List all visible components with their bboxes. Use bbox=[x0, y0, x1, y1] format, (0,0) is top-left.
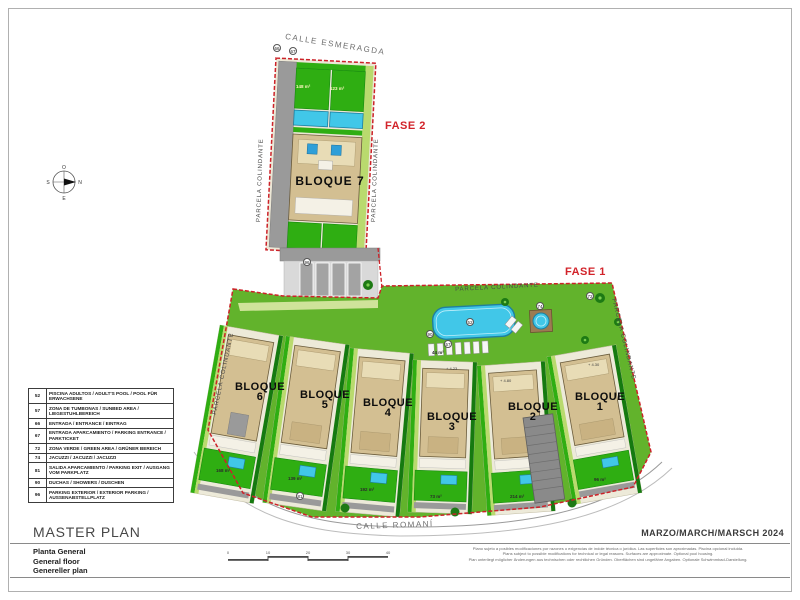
legend-row: 57ZONA DE TUMBONAS / SUNBED AREA / LIEGE… bbox=[29, 404, 174, 419]
area-label-bloque1: 96 m² bbox=[594, 477, 606, 482]
bloque2-num: 2 bbox=[530, 411, 537, 423]
tree-center bbox=[598, 296, 601, 299]
bloque5-num: 5 bbox=[322, 399, 329, 411]
bloque5-label: BLOQUE5 bbox=[297, 390, 353, 410]
scale-segment bbox=[268, 556, 308, 558]
sunbed bbox=[464, 342, 471, 354]
legend-row: 81SALIDA APARCAMIENTO / PARKING EXIT / A… bbox=[29, 463, 174, 478]
subtitle-es: Planta General bbox=[33, 547, 88, 557]
marker-parking-entrance: 67 bbox=[289, 47, 297, 55]
legend-num: 74 bbox=[29, 453, 47, 463]
legend-row: 96PARKING EXTERIOR / EXTERIOR PARKING / … bbox=[29, 488, 174, 503]
area-label-bloque2: 214 m² bbox=[510, 494, 524, 499]
fase2-pool-right bbox=[329, 112, 363, 129]
scale-segment bbox=[308, 559, 348, 561]
palm-tree-icon bbox=[341, 504, 350, 513]
compass-letter-right: N bbox=[78, 180, 82, 186]
area-label-pool-terrace: 44 m² bbox=[432, 350, 444, 355]
parking-stall bbox=[332, 263, 345, 296]
parking-stall bbox=[316, 263, 329, 296]
subtitle-en: General floor bbox=[33, 557, 88, 567]
subtitle-de: Genereller plan bbox=[33, 566, 88, 576]
sheet-title: MASTER PLAN bbox=[33, 524, 141, 540]
scale-step bbox=[268, 556, 269, 561]
compass-letter-top: O bbox=[62, 165, 66, 171]
garden bbox=[343, 466, 398, 502]
bloque2-label: BLOQUE2 bbox=[505, 402, 561, 422]
legend-text: DUCHAS / SHOWERS / DUSCHEN bbox=[47, 478, 174, 488]
marker-showers: 90 bbox=[426, 330, 434, 338]
bloque7-plunge-pool-right bbox=[331, 145, 342, 156]
legend-row: 66ENTRADA / ENTRANCE / EINTRAG bbox=[29, 419, 174, 429]
legend-text: ZONA VERDE / GREEN AREA / GRÜNER BEREICH bbox=[47, 444, 174, 454]
plunge-pool bbox=[441, 475, 457, 485]
tree-center bbox=[504, 301, 507, 304]
legend-num: 72 bbox=[29, 444, 47, 454]
legend-num: 81 bbox=[29, 463, 47, 478]
area-label-bloque5: 139 m² bbox=[288, 476, 302, 481]
marker-pool: 52 bbox=[466, 318, 474, 326]
sunbed bbox=[455, 342, 462, 354]
bloque3-parcel bbox=[408, 360, 477, 514]
parking-stall bbox=[300, 263, 313, 296]
legend-text: JACUZZI / JACUZZI / JACUZZI bbox=[47, 453, 174, 463]
legend-row: 67ENTRADA APARCAMIENTO / PARKING ENTRANC… bbox=[29, 428, 174, 443]
marker-sunbeds: 57 bbox=[444, 340, 452, 348]
corridor-parking-area bbox=[284, 261, 378, 299]
sheet-disclaimer: Plano sujeto a posibles modificaciones p… bbox=[430, 546, 786, 562]
legend-num: 66 bbox=[29, 419, 47, 429]
tree-icon bbox=[366, 283, 369, 286]
level-label-2: + 4.80 bbox=[500, 378, 511, 383]
bloque3-num: 3 bbox=[449, 421, 456, 433]
sheet-date: MARZO/MARCH/MARSCH 2024 bbox=[641, 528, 784, 538]
level-label-1: + 4.23 bbox=[446, 366, 457, 371]
bloque4-num: 4 bbox=[385, 407, 392, 419]
area-label-fase2-left: 148 m² bbox=[296, 84, 310, 89]
building-lower-detail bbox=[290, 422, 322, 444]
fase2-label: FASE 2 bbox=[385, 120, 426, 132]
bloque4-label: BLOQUE4 bbox=[360, 398, 416, 418]
scale-tick-30: 30 bbox=[346, 550, 351, 555]
building-roof-detail bbox=[426, 372, 465, 388]
legend-num: 52 bbox=[29, 389, 47, 404]
bloque1-num: 1 bbox=[597, 401, 604, 413]
marker-jacuzzi: 74 bbox=[536, 302, 544, 310]
bloque7-stair-core bbox=[318, 160, 332, 170]
marker-exterior-parking: 96 bbox=[303, 258, 311, 266]
compass-letter-bottom: E bbox=[62, 196, 66, 202]
drawing-sheet: O N E S CALLE ESMERAGDA CALLE ROMANÍ FAS… bbox=[0, 0, 800, 600]
building-lower-detail bbox=[428, 437, 459, 454]
legend-row: 52PISCINA ADULTOS / ADULT'S POOL / POOL … bbox=[29, 389, 174, 404]
bloque7-label: BLOQUE 7 bbox=[292, 176, 368, 186]
area-label-bloque3: 73 m² bbox=[430, 494, 442, 499]
level-label-3: + 4.30 bbox=[588, 362, 599, 367]
compass-icon: O N E S bbox=[44, 162, 84, 202]
bloque3-label: BLOQUE3 bbox=[424, 412, 480, 432]
legend-num: 67 bbox=[29, 428, 47, 443]
marker-parking-exit: 81 bbox=[296, 492, 304, 500]
bloque6-label: BLOQUE6 bbox=[232, 382, 288, 402]
titleblock-divider-bottom bbox=[10, 577, 790, 578]
marker-green-area: 72 bbox=[586, 292, 594, 300]
legend-num: 96 bbox=[29, 488, 47, 503]
building-roof-detail bbox=[362, 361, 401, 380]
jacuzzi bbox=[529, 309, 552, 332]
tree-center bbox=[584, 339, 587, 342]
disclaimer-de: Plan unterliegt möglicher Änderungen aus… bbox=[430, 557, 786, 562]
legend-row: 72ZONA VERDE / GREEN AREA / GRÜNER BEREI… bbox=[29, 444, 174, 454]
area-label-fase2-right: 123 m² bbox=[330, 86, 344, 91]
sunbed bbox=[482, 341, 489, 353]
sheet-subtitles: Planta General General floor Genereller … bbox=[33, 547, 88, 576]
legend-num: 90 bbox=[29, 478, 47, 488]
legend-row: 90DUCHAS / SHOWERS / DUSCHEN bbox=[29, 478, 174, 488]
fase2-pool-left bbox=[294, 110, 329, 127]
scale-step bbox=[348, 556, 349, 561]
corridor-driveway bbox=[280, 248, 380, 261]
fase1-label: FASE 1 bbox=[565, 266, 606, 278]
area-label-bloque6: 168 m² bbox=[216, 468, 230, 473]
jacuzzi-water bbox=[533, 313, 549, 329]
building-lower-detail bbox=[359, 431, 390, 452]
legend-text: ZONA DE TUMBONAS / SUNBED AREA / LIEGEST… bbox=[47, 404, 174, 419]
terrace bbox=[419, 458, 465, 469]
bloque1-label: BLOQUE1 bbox=[572, 392, 628, 412]
fase2-garden-bottom-right bbox=[322, 224, 357, 252]
palm-tree-icon bbox=[451, 508, 460, 517]
parking-stall bbox=[348, 263, 361, 296]
site-plan-drawing bbox=[0, 0, 800, 600]
scale-segment bbox=[228, 559, 268, 561]
compass-letter-left: S bbox=[46, 180, 50, 186]
legend-text: PISCINA ADULTOS / ADULT'S POOL / POOL FÜ… bbox=[47, 389, 174, 404]
compass-north-arrow bbox=[64, 179, 76, 186]
legend-text: ENTRADA / ENTRANCE / EINTRAG bbox=[47, 419, 174, 429]
bloque6-num: 6 bbox=[257, 391, 264, 403]
bloque7-plunge-pool-left bbox=[307, 144, 318, 155]
legend-table: 52PISCINA ADULTOS / ADULT'S POOL / POOL … bbox=[28, 388, 174, 503]
scale-tick-10: 10 bbox=[266, 550, 271, 555]
scale-tick-0: 0 bbox=[227, 550, 230, 555]
sunbed bbox=[473, 341, 480, 353]
titleblock-divider-top bbox=[10, 543, 790, 544]
scale-tick-40: 40 bbox=[386, 550, 391, 555]
legend-text: ENTRADA APARCAMIENTO / PARKING ENTRANCE … bbox=[47, 428, 174, 443]
legend-text: SALIDA APARCAMIENTO / PARKING EXIT / AUS… bbox=[47, 463, 174, 478]
fase2-parcel bbox=[266, 58, 376, 255]
legend-text: PARKING EXTERIOR / EXTERIOR PARKING / AU… bbox=[47, 488, 174, 503]
building-stair-core bbox=[227, 412, 249, 437]
marker-entrance: 66 bbox=[273, 44, 281, 52]
scale-tick-20: 20 bbox=[306, 550, 311, 555]
bloque7-terrace bbox=[295, 197, 353, 216]
building-roof-detail bbox=[493, 374, 534, 392]
scale-bar: 0 10 20 30 40 bbox=[226, 548, 396, 564]
parking-corridor bbox=[280, 248, 383, 299]
scale-segment bbox=[348, 556, 388, 558]
scale-step bbox=[308, 556, 309, 561]
legend-num: 57 bbox=[29, 404, 47, 419]
area-label-bloque4: 192 m² bbox=[360, 487, 374, 492]
legend-row: 74JACUZZI / JACUZZI / JACUZZI bbox=[29, 453, 174, 463]
plunge-pool bbox=[370, 472, 387, 483]
fase2-garden-bottom-left bbox=[287, 222, 321, 250]
